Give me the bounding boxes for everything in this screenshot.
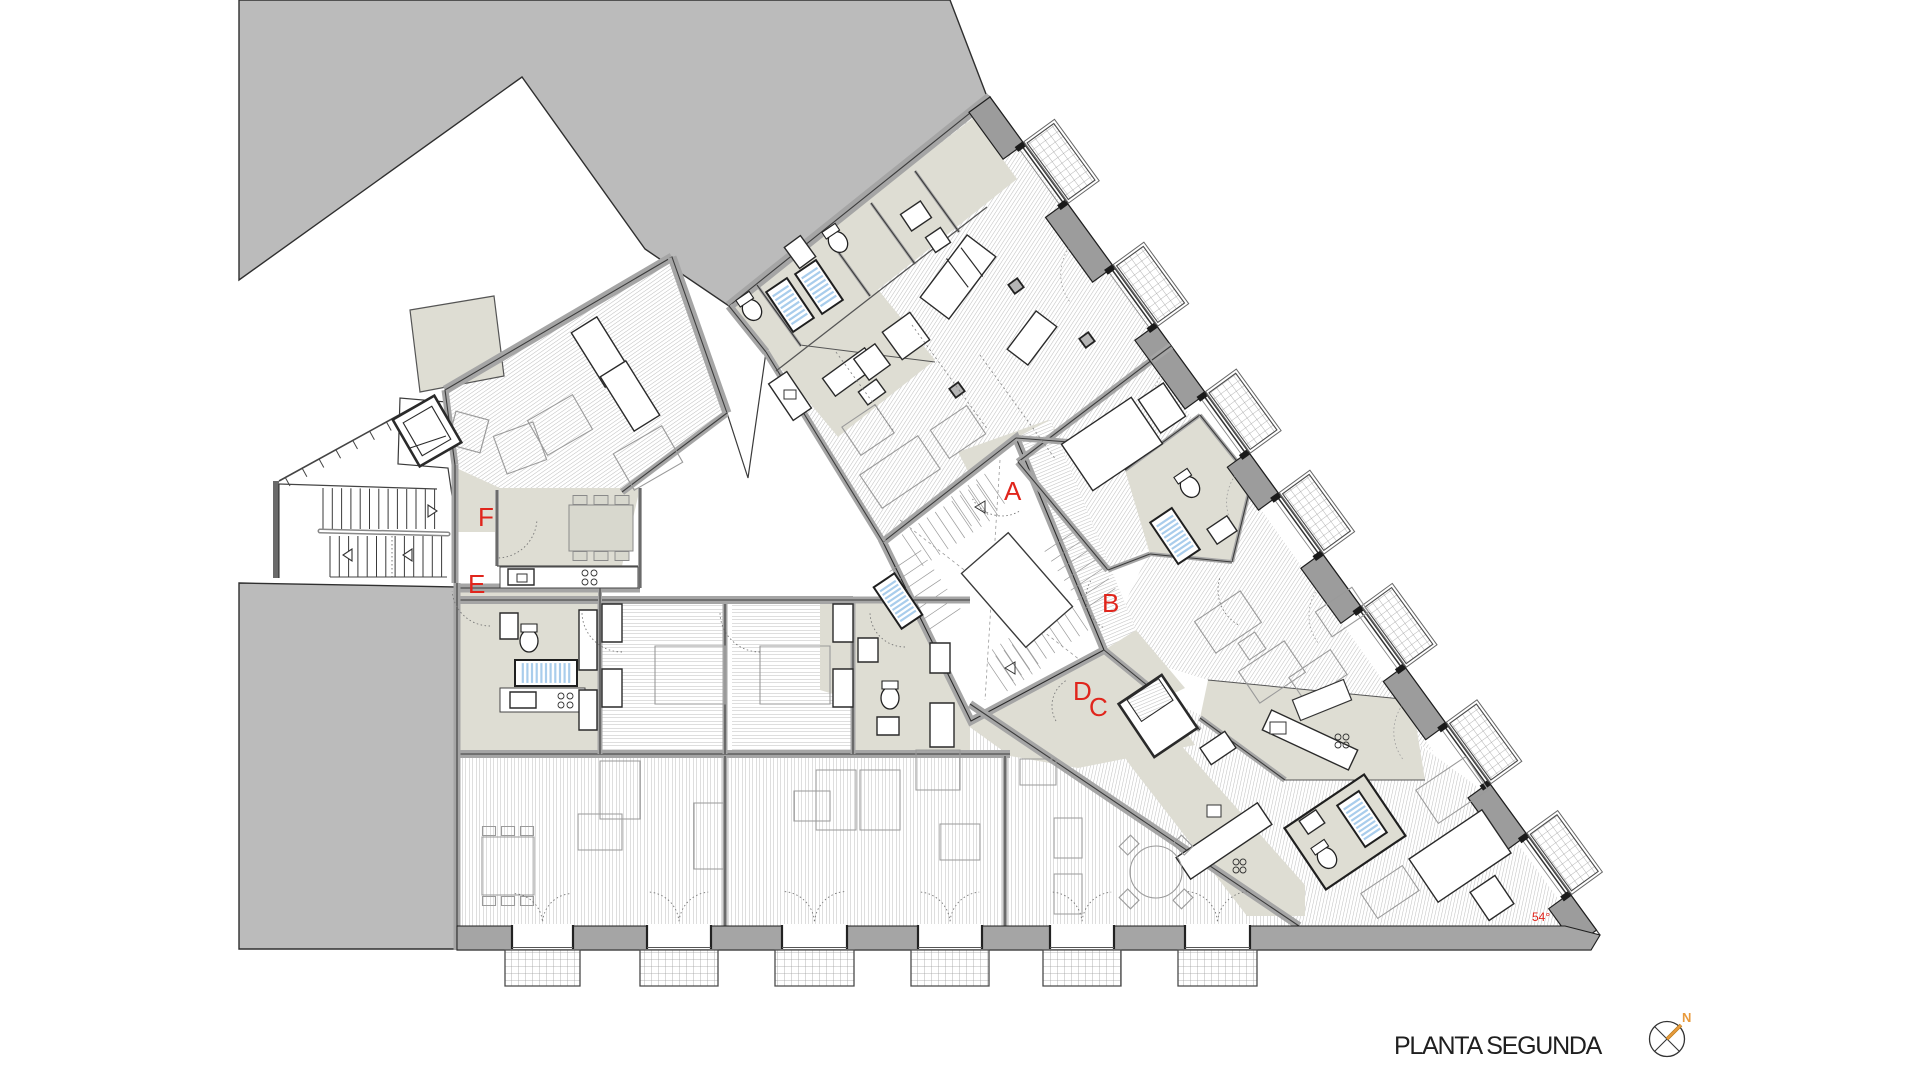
svg-text:C: C (1089, 692, 1108, 722)
svg-text:F: F (478, 502, 494, 532)
svg-text:PLANTA SEGUNDA: PLANTA SEGUNDA (1394, 1032, 1603, 1060)
svg-text:D: D (1073, 676, 1092, 706)
svg-text:A: A (1004, 476, 1022, 506)
svg-text:B: B (1102, 588, 1119, 618)
svg-text:E: E (468, 569, 485, 599)
svg-text:N: N (1682, 1010, 1691, 1025)
svg-text:54°: 54° (1532, 910, 1550, 924)
